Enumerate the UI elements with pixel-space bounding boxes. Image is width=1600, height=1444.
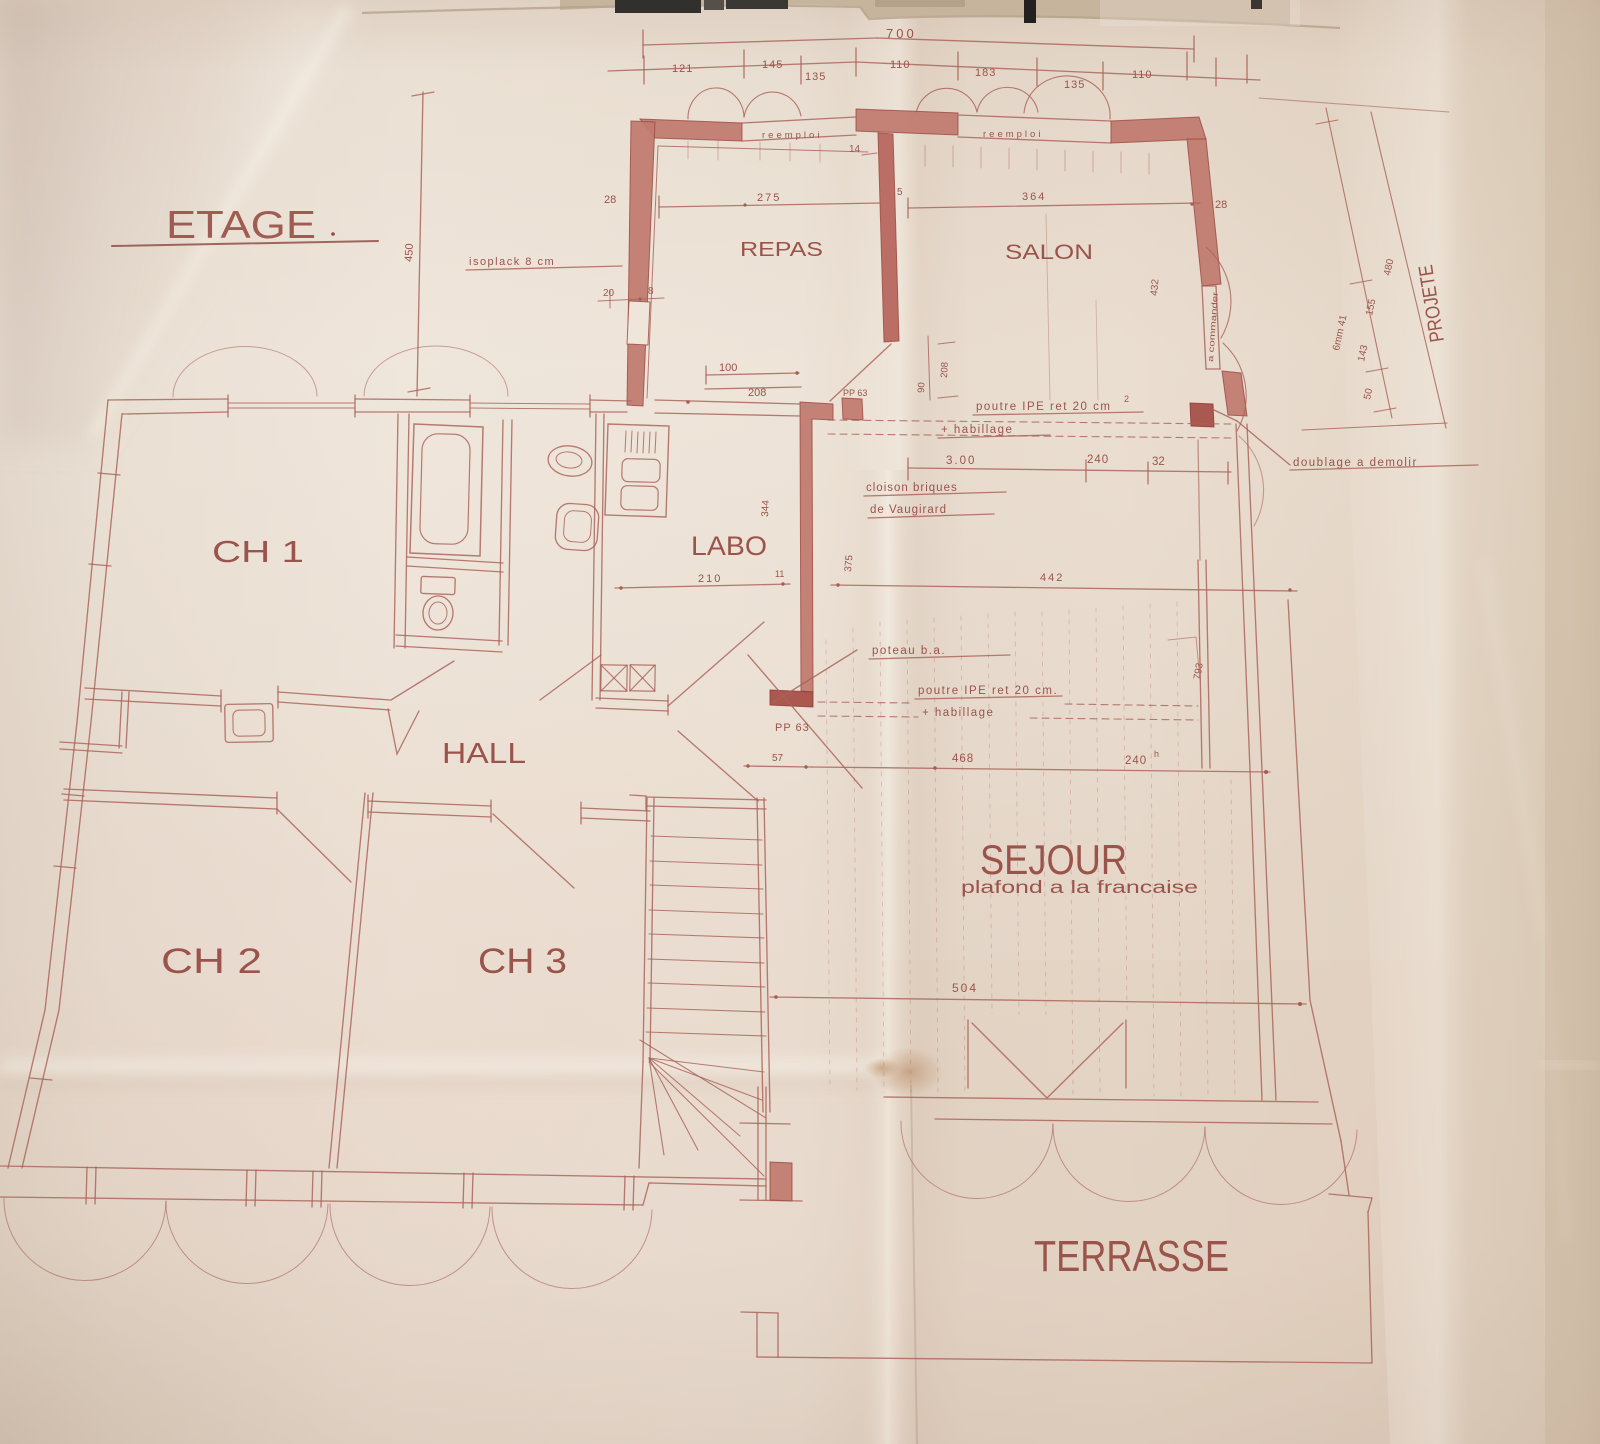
svg-text:57: 57 [772,753,784,764]
svg-text:8: 8 [648,286,654,297]
svg-text:504: 504 [952,981,978,995]
svg-text:PP 63: PP 63 [775,722,810,734]
svg-text:442: 442 [1040,572,1064,584]
svg-text:208: 208 [748,387,766,399]
svg-text:364: 364 [1022,191,1046,203]
svg-text:28: 28 [1215,199,1227,211]
svg-text:reemploi: reemploi [762,130,822,141]
svg-text:110: 110 [890,59,911,71]
svg-text:h: h [1154,749,1159,759]
svg-text:432: 432 [1149,278,1161,296]
svg-text:11: 11 [775,569,784,579]
svg-text:14: 14 [849,144,861,155]
svg-text:210: 210 [698,573,722,585]
svg-text:145: 145 [762,59,783,71]
svg-text:SEJOUR: SEJOUR [980,836,1127,883]
svg-text:ETAGE: ETAGE [166,204,316,247]
svg-text:2: 2 [1124,394,1129,404]
svg-text:TERRASSE: TERRASSE [1034,1232,1229,1281]
svg-text:CH 2: CH 2 [161,942,262,981]
svg-text:+ habillage: + habillage [922,707,994,719]
svg-text:PP 63: PP 63 [843,388,867,398]
svg-text:700: 700 [886,26,917,41]
svg-text:32: 32 [1152,456,1165,468]
svg-text:poutre IPE ret 20 cm: poutre IPE ret 20 cm [976,401,1111,413]
svg-text:183: 183 [975,67,996,79]
svg-text:CH 1: CH 1 [212,534,304,569]
svg-text:20: 20 [603,288,615,299]
svg-text:240: 240 [1125,755,1147,767]
svg-text:plafond a la francaise: plafond a la francaise [961,877,1198,897]
svg-text:208: 208 [939,362,951,378]
svg-text:275: 275 [757,192,781,204]
svg-text:LABO: LABO [691,531,767,561]
svg-text:100: 100 [719,362,737,374]
svg-text:SALON: SALON [1005,241,1093,264]
svg-text:375: 375 [843,554,855,572]
svg-text:121: 121 [672,63,693,75]
svg-text:5: 5 [897,187,903,198]
svg-text:240: 240 [1087,454,1109,466]
svg-text:poutre IPE ret 20 cm.: poutre IPE ret 20 cm. [918,685,1058,697]
svg-text:135: 135 [1064,79,1085,91]
svg-text:90: 90 [916,382,928,393]
svg-text:110: 110 [1132,69,1153,81]
svg-text:de Vaugirard: de Vaugirard [870,504,947,516]
svg-text:reemploi: reemploi [983,129,1043,140]
svg-text:REPAS: REPAS [740,239,823,261]
svg-text:HALL: HALL [442,738,526,770]
svg-text:isoplack 8 cm: isoplack 8 cm [469,256,555,268]
svg-text:+ habillage: + habillage [941,424,1013,436]
svg-text:135: 135 [805,71,826,83]
svg-text:cloison briques: cloison briques [866,482,958,494]
svg-text:468: 468 [952,753,974,765]
svg-text:344: 344 [760,499,772,517]
svg-text:poteau b.a.: poteau b.a. [872,645,946,657]
svg-text:450: 450 [403,243,416,262]
svg-text:CH 3: CH 3 [478,942,567,981]
svg-text:3.00: 3.00 [946,455,976,467]
svg-text:28: 28 [604,194,616,206]
